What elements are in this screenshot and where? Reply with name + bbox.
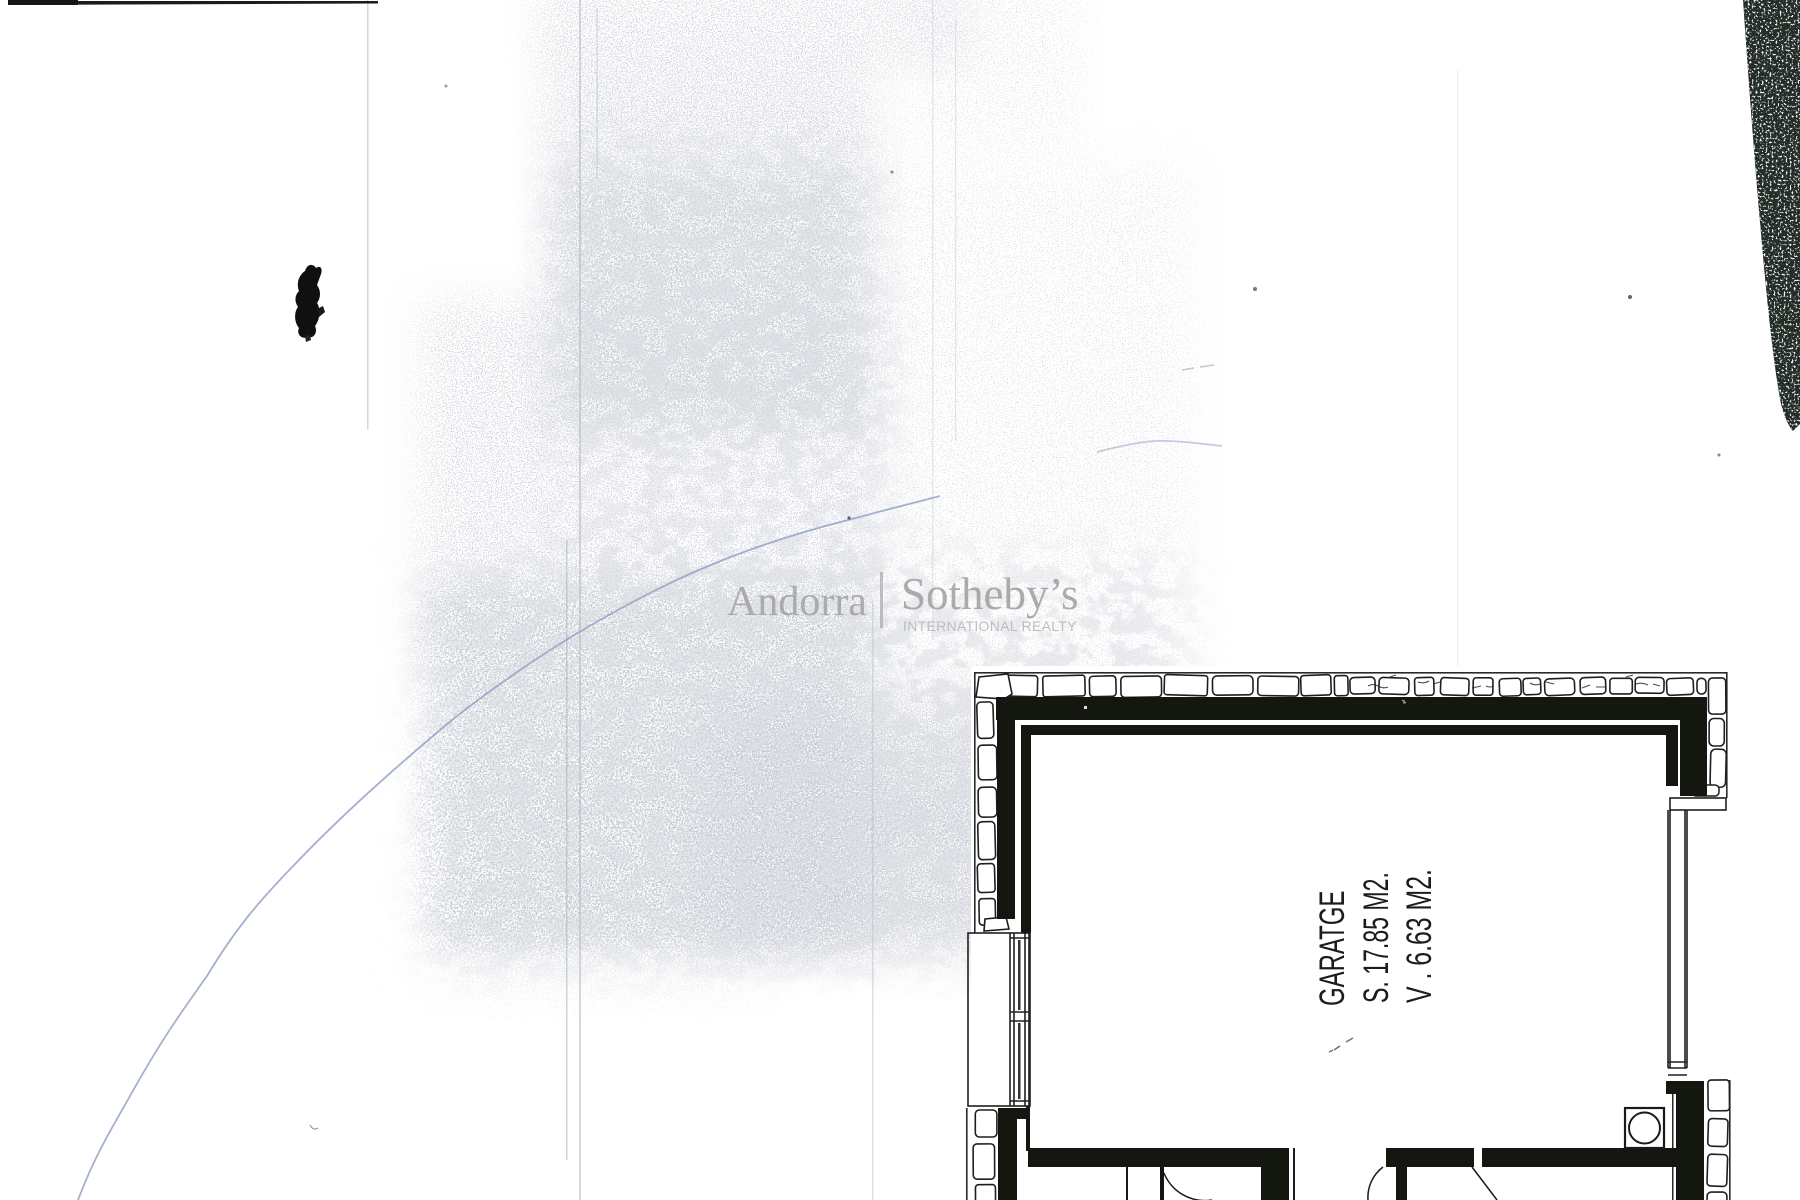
svg-text:S. 17.85 M2.: S. 17.85 M2. — [1357, 872, 1396, 1003]
svg-text:Andorra: Andorra — [727, 579, 867, 625]
svg-text:Sotheby’s: Sotheby’s — [901, 569, 1079, 619]
svg-text:INTERNATIONAL REALTY: INTERNATIONAL REALTY — [903, 618, 1077, 634]
svg-text:GARATGE: GARATGE — [1314, 891, 1353, 1006]
svg-text:V . 6.63 M2.: V . 6.63 M2. — [1401, 869, 1439, 1003]
